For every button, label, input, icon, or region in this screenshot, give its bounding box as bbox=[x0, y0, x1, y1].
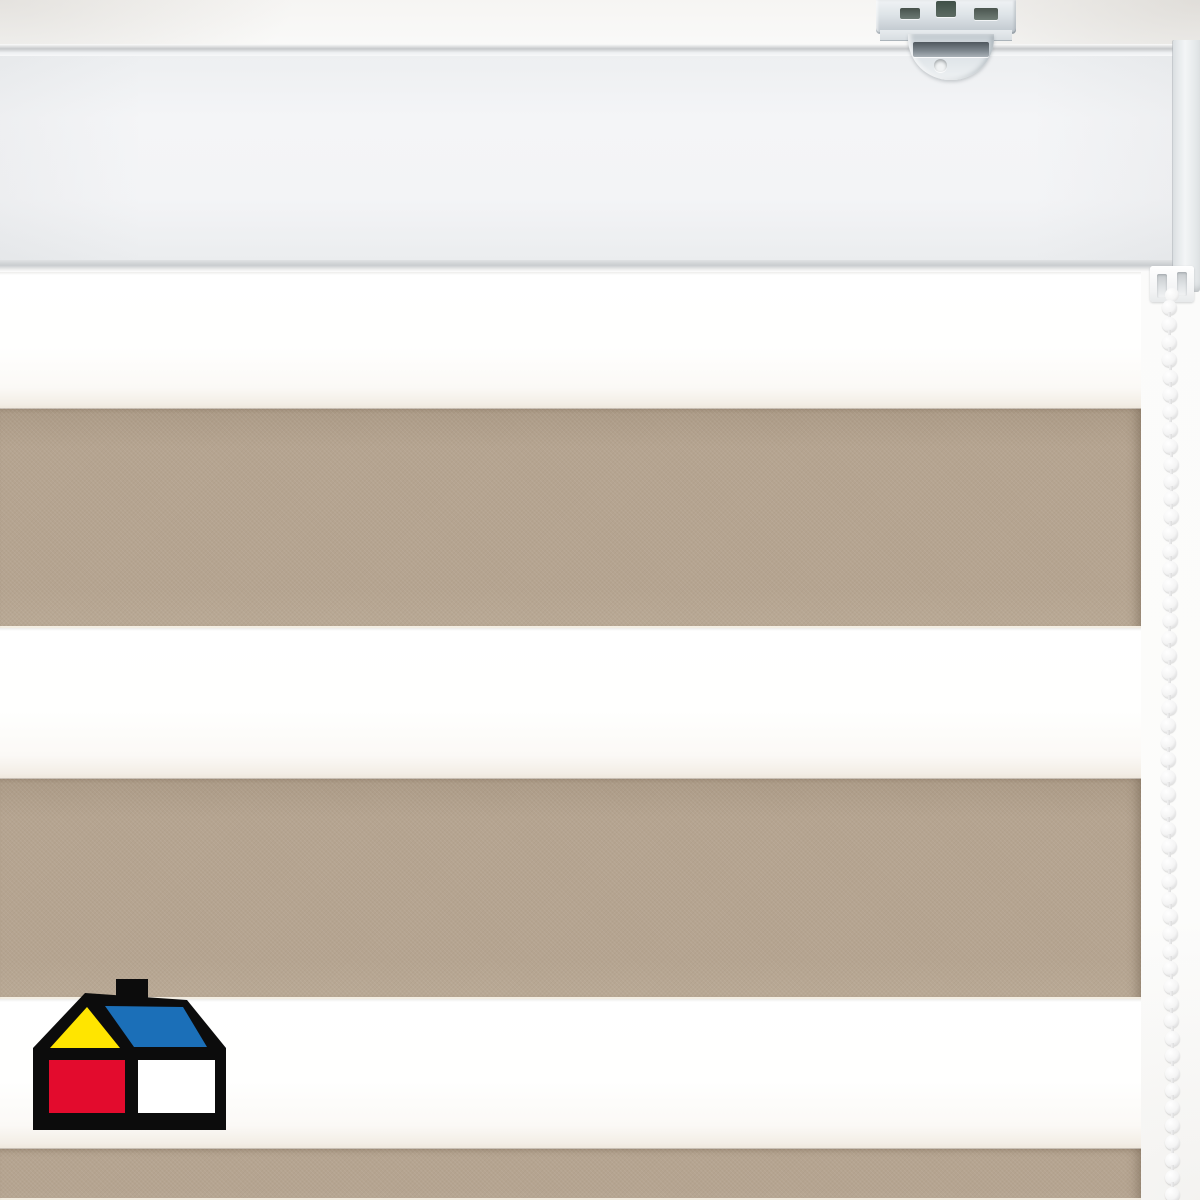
logo-wall-red bbox=[49, 1060, 125, 1113]
bracket-slot-left bbox=[900, 8, 920, 19]
fabric-stripe-solid bbox=[0, 1148, 1141, 1200]
bracket-slot-right bbox=[974, 8, 998, 20]
fabric-stripe-sheer bbox=[0, 628, 1141, 778]
product-photo bbox=[0, 0, 1200, 1200]
bracket-tab-slot bbox=[913, 42, 989, 57]
headrail-end-cap bbox=[1173, 40, 1200, 292]
bracket-screw-hole bbox=[934, 59, 947, 72]
headrail-top-edge bbox=[0, 44, 1200, 56]
chain-bead bbox=[1165, 1187, 1180, 1200]
house-logo bbox=[33, 979, 227, 1131]
headrail-bottom-edge bbox=[0, 260, 1200, 272]
fabric-stripe-solid bbox=[0, 778, 1141, 999]
logo-wall-white bbox=[138, 1060, 215, 1113]
fabric-stripe-sheer bbox=[0, 272, 1141, 408]
blind-headrail bbox=[0, 44, 1200, 272]
headrail-face bbox=[0, 56, 1200, 260]
bracket-slot-center bbox=[936, 1, 956, 17]
chain-clutch bbox=[1150, 266, 1194, 302]
fabric-stripe-solid bbox=[0, 408, 1141, 628]
